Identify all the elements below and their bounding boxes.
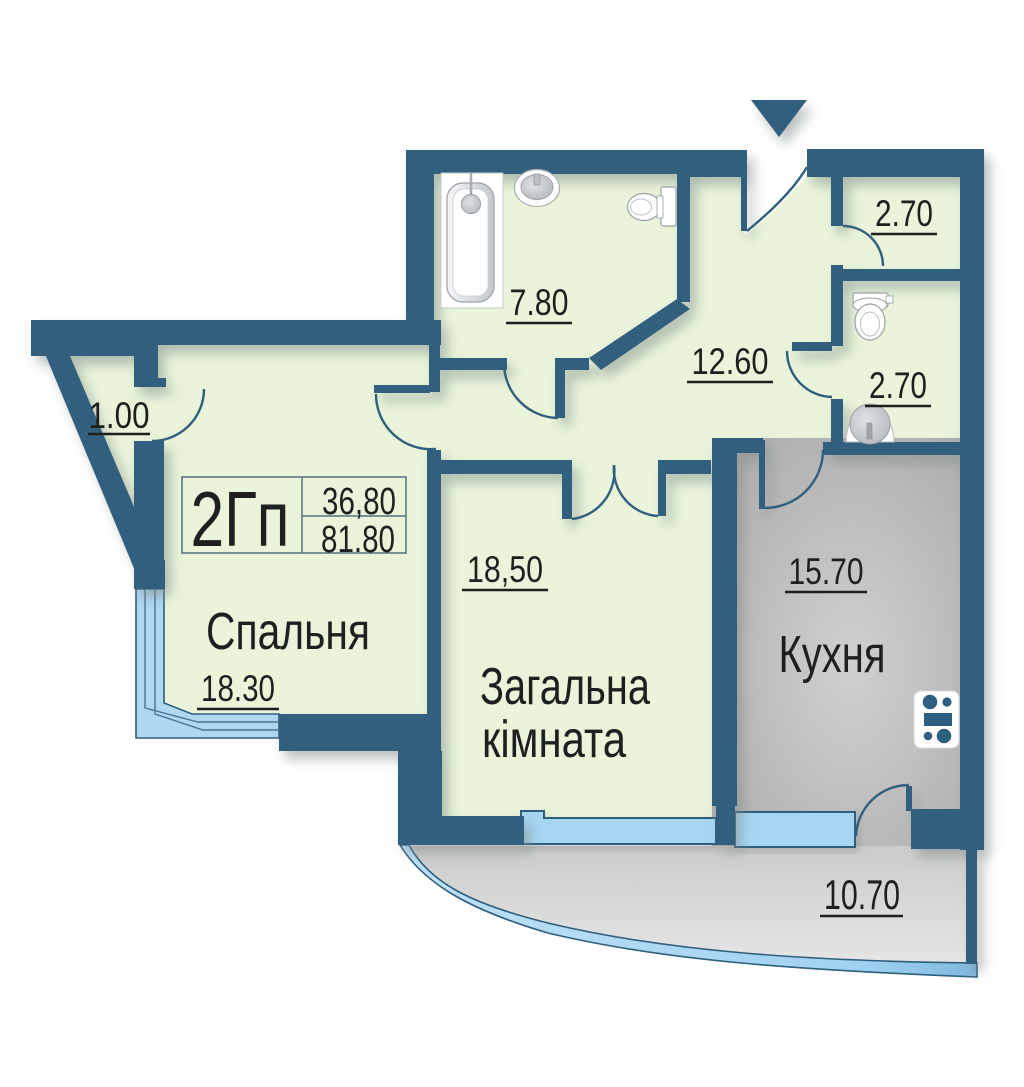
svg-text:Кухня: Кухня: [779, 626, 886, 684]
svg-text:кімната: кімната: [482, 711, 626, 769]
svg-text:18,50: 18,50: [467, 549, 543, 590]
svg-text:2.70: 2.70: [869, 365, 927, 406]
svg-text:2Гп: 2Гп: [191, 475, 290, 563]
svg-text:18.30: 18.30: [201, 668, 275, 709]
svg-text:1.00: 1.00: [89, 395, 150, 436]
svg-text:12.60: 12.60: [692, 341, 769, 382]
svg-text:7.80: 7.80: [510, 282, 569, 323]
svg-text:10.70: 10.70: [824, 871, 900, 918]
svg-text:81.80: 81.80: [321, 519, 395, 561]
svg-text:36,80: 36,80: [322, 481, 396, 523]
svg-text:2.70: 2.70: [875, 193, 933, 234]
svg-text:15.70: 15.70: [789, 551, 864, 592]
svg-text:Спальня: Спальня: [206, 603, 370, 661]
svg-text:Загальна: Загальна: [480, 658, 650, 716]
